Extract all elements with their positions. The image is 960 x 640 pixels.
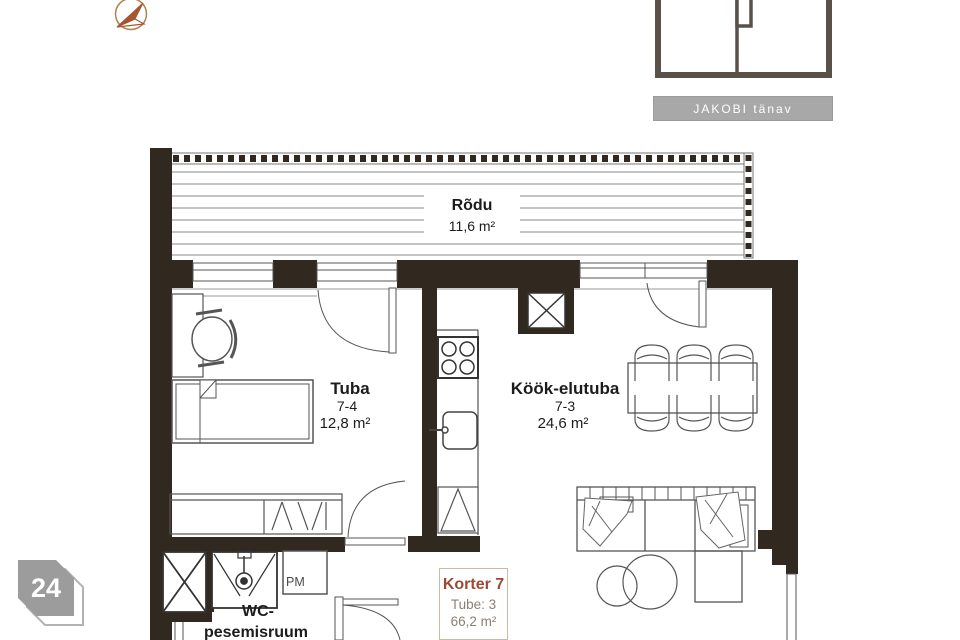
bathroom-door: [335, 597, 400, 640]
dishwasher-cabinet: [438, 487, 478, 533]
wardrobe: [170, 494, 342, 534]
bathroom-name-line2: pesemisruum: [204, 624, 308, 640]
bathroom-name-line1: WC-: [242, 603, 274, 621]
bed: [172, 380, 313, 443]
street-sign: JAKOBI tänav: [653, 96, 833, 121]
bathroom-shaft: [163, 552, 206, 612]
stove: [438, 337, 478, 378]
kitchen-living-area: 24,6 m²: [538, 416, 589, 433]
living-room-window: [787, 574, 796, 640]
compass-icon: [105, 0, 160, 36]
bedroom-area: 12,8 m²: [320, 416, 371, 433]
dining-table: [628, 363, 757, 413]
balcony-name: Rõdu: [452, 197, 493, 215]
bathroom-window: [175, 622, 183, 640]
bedroom-name: Tuba: [330, 380, 369, 399]
apartment-title: Korter 7: [440, 576, 507, 594]
bedroom-balcony-door: [317, 263, 397, 353]
shower: [212, 551, 277, 608]
bedroom-window: [193, 263, 273, 281]
page-badge-number: 24: [18, 560, 74, 616]
apartment-area: 66,2 m²: [440, 614, 507, 629]
street-sign-label: JAKOBI tänav: [693, 102, 792, 116]
dining-chairs: [635, 345, 753, 431]
bedroom-door: [345, 481, 405, 545]
apartment-rooms: Tube: 3: [440, 597, 507, 612]
kitchen-window-and-balcony-door: [580, 263, 707, 327]
balcony-area: 11,6 m²: [449, 219, 495, 234]
apartment-card: Korter 7 Tube: 3 66,2 m²: [439, 568, 508, 640]
bedroom-number: 7-4: [337, 399, 357, 414]
kitchen-living-name: Köök-elutuba: [511, 380, 620, 399]
washing-machine-label: PM: [286, 575, 305, 589]
kitchen-shaft: [528, 293, 565, 328]
coffee-tables: [597, 555, 677, 609]
floorplan-page: JAKOBI tänav Rõdu 11,6 m² Tuba 7-4 12,8 …: [0, 0, 960, 640]
kitchen-living-number: 7-3: [555, 399, 575, 414]
site-minimap: [650, 0, 840, 90]
